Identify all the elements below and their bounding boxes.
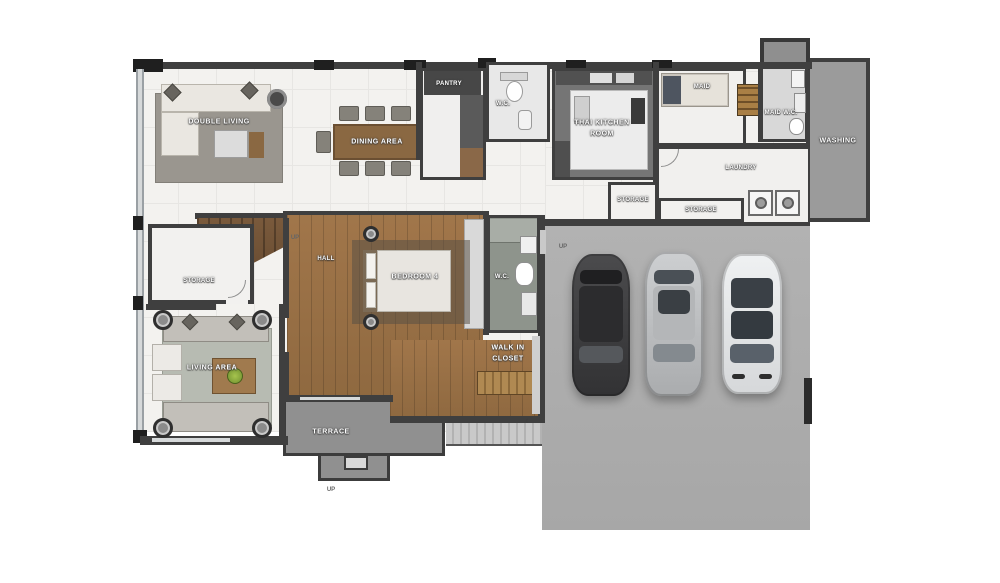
toilet xyxy=(500,72,528,81)
maid-bed-mattress xyxy=(681,75,727,105)
wood-bench xyxy=(249,132,264,158)
closet-bottom-wall xyxy=(390,416,542,423)
top-pier xyxy=(314,60,334,70)
left-pier xyxy=(133,216,143,230)
bedroom-left-wall xyxy=(283,218,289,318)
kitchen-low-cabinet xyxy=(555,141,570,177)
dining-chair xyxy=(391,161,411,176)
car-windshield xyxy=(653,344,695,362)
pantry-label: PANTRY xyxy=(436,81,462,87)
armchair xyxy=(152,344,182,371)
living-top-wall xyxy=(146,304,216,310)
car-rear-glass xyxy=(654,270,694,284)
bedroom-planter xyxy=(363,314,379,330)
bedroom-planter xyxy=(363,226,379,242)
dining-chair xyxy=(365,161,385,176)
garage-right-wall xyxy=(804,378,812,424)
living-planter xyxy=(252,418,272,438)
walk-in-closet-label-2: CLOSET xyxy=(492,356,523,363)
cooktop xyxy=(631,98,645,124)
floor-plan: WASHING TERRACE UP ‹ DOUBLE LIVING DININ… xyxy=(0,0,1000,583)
washer-drum-icon xyxy=(782,197,794,209)
dining-chair xyxy=(316,131,331,153)
toilet-bowl xyxy=(506,81,523,102)
living-terrace-wall xyxy=(279,304,285,442)
thai-kitchen-label-1: THAI KITCHEN xyxy=(574,120,629,127)
car-panoramic-roof xyxy=(731,278,773,308)
bottom-window-band xyxy=(152,438,230,442)
car-rear-glass xyxy=(580,270,622,284)
bed-mattress xyxy=(377,250,451,312)
armchair xyxy=(152,374,182,401)
wc-bedroom-label: W.C. xyxy=(495,274,509,280)
kitchen-appliance xyxy=(590,73,612,83)
terrace-step xyxy=(344,456,368,470)
car-windshield xyxy=(730,344,774,363)
car-sedan-silver xyxy=(645,252,703,396)
car-sedan-white xyxy=(722,254,782,394)
washing-machine xyxy=(748,190,773,216)
car-windshield xyxy=(579,346,623,363)
maid-wc-washer xyxy=(791,70,805,88)
kitchen-appliance xyxy=(616,73,634,83)
maid-bed-pillow xyxy=(663,76,681,104)
bedroom4-label: BEDROOM 4 xyxy=(392,274,439,281)
car-suv-dark xyxy=(572,254,630,396)
storage-kitchen-label: STORAGE xyxy=(617,197,649,203)
bed-pillow xyxy=(366,253,376,279)
sink xyxy=(518,110,532,130)
terrace-up-marker: UP xyxy=(327,487,335,493)
washing-machine xyxy=(775,190,800,216)
dining-chair xyxy=(365,106,385,121)
closet-shelf xyxy=(532,336,540,414)
maid-label: MAID xyxy=(694,84,711,90)
bedroom-window-band xyxy=(300,397,360,400)
storage-laundry-label: STORAGE xyxy=(685,207,717,213)
garage-door-leaf xyxy=(540,230,546,254)
wc-top-label: W.C. xyxy=(496,101,510,107)
storage-hall-door-gap xyxy=(226,298,248,304)
thai-kitchen-label-2: ROOM xyxy=(590,131,614,138)
car-panoramic-roof xyxy=(731,311,773,339)
left-window-wall xyxy=(136,69,144,441)
closet-dresser xyxy=(477,371,535,395)
living-planter xyxy=(153,418,173,438)
walk-in-closet-label-1: WALK IN xyxy=(491,345,524,352)
left-pier xyxy=(133,296,143,310)
coffee-table xyxy=(214,130,248,158)
walkway-direction-arrow: ‹ xyxy=(525,415,529,427)
laundry-label: LAUNDRY xyxy=(725,165,756,171)
living-planter xyxy=(252,310,272,330)
storage-hall-label: STORAGE xyxy=(183,278,215,284)
car-sunroof xyxy=(658,290,690,314)
dining-chair xyxy=(339,161,359,176)
washer-drum-icon xyxy=(755,197,767,209)
hall-label: HALL xyxy=(317,256,334,262)
pantry-counter-side xyxy=(460,95,483,149)
car-hood-vent xyxy=(759,374,772,379)
dining-chair xyxy=(339,106,359,121)
washing-label: WASHING xyxy=(820,138,857,145)
dining-area-label: DINING AREA xyxy=(351,139,403,146)
double-living-label: DOUBLE LIVING xyxy=(188,119,249,126)
stairs-up-marker: UP xyxy=(291,235,299,241)
car-roof xyxy=(579,286,623,342)
bath-cabinet xyxy=(521,292,537,316)
bed-pillow xyxy=(366,282,376,308)
step-ladder xyxy=(737,84,759,116)
round-side-table xyxy=(267,89,287,109)
vanity xyxy=(520,236,537,254)
car-hood-vent xyxy=(732,374,745,379)
maid-wc-label: MAID W.C. xyxy=(765,110,798,116)
terrace-label: TERRACE xyxy=(312,429,349,436)
garage-up-marker: UP xyxy=(559,244,567,250)
living-planter xyxy=(153,310,173,330)
maid-wc-toilet xyxy=(789,118,804,135)
dining-chair xyxy=(391,106,411,121)
toilet xyxy=(515,262,534,286)
living-area-label: LIVING AREA xyxy=(187,365,237,372)
pantry-wood-cabinet xyxy=(460,148,483,177)
